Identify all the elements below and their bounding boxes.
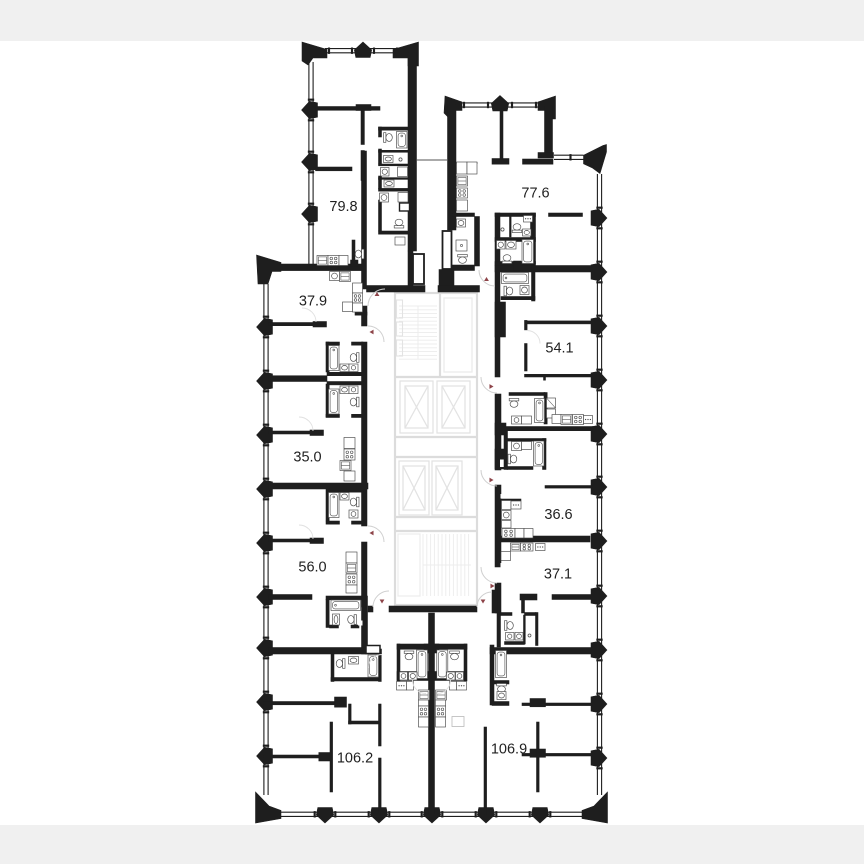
svg-text:106.9: 106.9 bbox=[491, 742, 527, 758]
svg-text:106.2: 106.2 bbox=[337, 751, 373, 767]
svg-text:37.9: 37.9 bbox=[299, 294, 327, 310]
svg-text:77.6: 77.6 bbox=[521, 186, 549, 202]
svg-text:37.1: 37.1 bbox=[544, 567, 572, 583]
svg-text:56.0: 56.0 bbox=[298, 560, 326, 576]
svg-text:35.0: 35.0 bbox=[293, 450, 321, 466]
svg-text:79.8: 79.8 bbox=[329, 199, 357, 215]
svg-text:54.1: 54.1 bbox=[545, 341, 573, 357]
svg-text:36.6: 36.6 bbox=[544, 507, 572, 523]
